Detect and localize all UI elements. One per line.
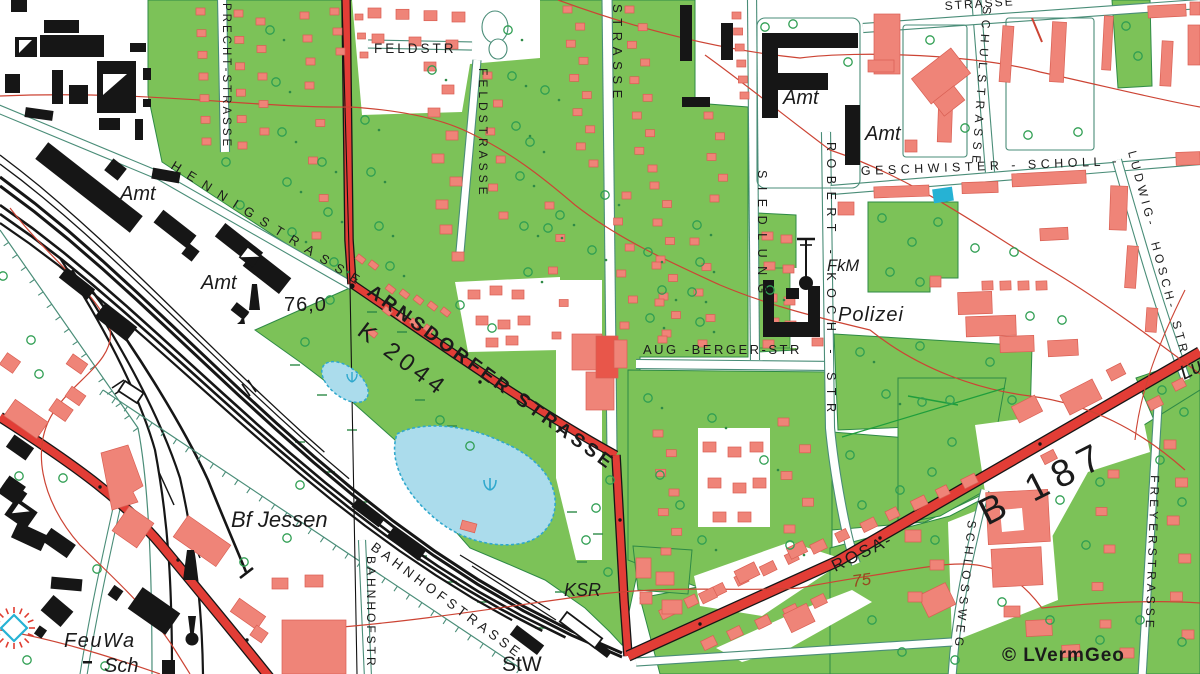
svg-text:FELDSTRASSE: FELDSTRASSE	[476, 68, 490, 199]
svg-text:Amt: Amt	[782, 87, 820, 109]
svg-text:BAHNHOFSTR: BAHNHOFSTR	[364, 556, 378, 669]
svg-text:Bf Jessen: Bf Jessen	[231, 507, 328, 532]
svg-text:75: 75	[851, 569, 873, 591]
svg-text:STRASSE: STRASSE	[610, 4, 625, 104]
svg-text:Polizei: Polizei	[838, 304, 904, 326]
svg-text:FkM: FkM	[827, 257, 859, 275]
svg-text:Amt: Amt	[864, 123, 902, 145]
svg-text:AUG -BERGER-STR: AUG -BERGER-STR	[643, 342, 802, 357]
svg-text:FELDSTR: FELDSTR	[374, 41, 457, 56]
svg-text:Amt: Amt	[200, 272, 238, 294]
svg-text:Amt: Amt	[119, 183, 157, 205]
svg-text:76,0: 76,0	[284, 294, 327, 316]
svg-text:FeuWa: FeuWa	[64, 630, 136, 652]
svg-text:SIEDLUNG: SIEDLUNG	[755, 170, 769, 302]
svg-text:StW: StW	[502, 653, 542, 674]
svg-text:PRECHT-STRASSE: PRECHT-STRASSE	[220, 3, 232, 149]
svg-text:Sch: Sch	[104, 655, 138, 674]
svg-text:ROBERT - KOCH - STR: ROBERT - KOCH - STR	[824, 142, 838, 419]
svg-text:© LVermGeo: © LVermGeo	[1002, 645, 1125, 666]
svg-text:KSR: KSR	[564, 580, 601, 600]
